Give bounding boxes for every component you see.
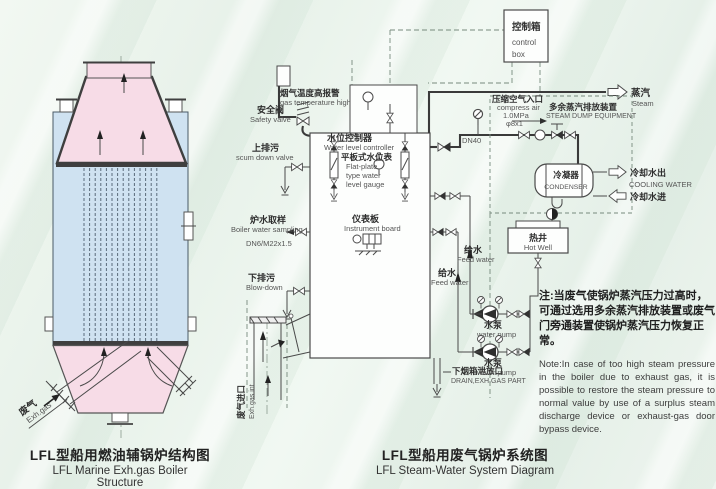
condensate-valve: [552, 209, 558, 220]
dump-control-valve: [552, 131, 563, 138]
pump2-label-zh: 水泵: [484, 357, 503, 368]
steam-dump-label-en: STEAM DUMP EQUIPMENT: [546, 113, 637, 120]
cooling-in-arrow-icon: [609, 190, 626, 203]
gauge-label-en1: Flat-plate: [346, 162, 377, 171]
steam-label-en: Steam: [632, 99, 654, 108]
dump-separator: [535, 130, 545, 140]
right-flange: [188, 317, 196, 331]
gauge-label-en2: type water: [346, 171, 381, 180]
boiler-water-sampling: 炉水取样 Boiler water sampling DN6/M22x1.5: [231, 214, 310, 248]
sampling-label-en: Boiler water sampling: [231, 225, 303, 234]
left-caption-en: LFL Marine Exh.gas Boiler Structure: [28, 465, 212, 489]
blow-down-valve: 下排污 Blow-down: [246, 272, 310, 319]
control-box: 控制箱 control box: [504, 10, 548, 62]
safety-valve-label-zh: 安全阀: [257, 104, 284, 115]
steam-dump-label-zh: 多余蒸汽排放装置: [549, 102, 618, 112]
cooling-out-arrow-icon: [609, 166, 626, 179]
control-box-label-en1: control: [512, 38, 536, 47]
scum-label-en: scum down valve: [236, 153, 294, 162]
hot-well-label-en: Hot Well: [524, 243, 553, 252]
scum-label-zh: 上排污: [252, 142, 279, 153]
safety-valve-label-en: Safety valve: [250, 115, 291, 124]
furnace: [53, 346, 188, 414]
gas-funnel: [57, 77, 186, 163]
compress-air-pipe-size: φ8x1: [506, 119, 523, 128]
instrument-board-label-zh: 仪表板: [351, 213, 380, 224]
blow-down-label-en: Blow-down: [246, 283, 283, 292]
pump1-label-zh: 水泵: [484, 319, 503, 330]
condenser-label-zh: 冷凝器: [553, 170, 579, 180]
hot-well-label-zh: 热井: [529, 232, 547, 243]
dn40-label: DN40: [462, 136, 481, 145]
upper-tube-sheet: [56, 163, 187, 167]
instrument-board-label-en: Instrument board: [344, 224, 401, 233]
note-block: 注:当废气使锅炉蒸汽压力过高时，可通过选用多余蒸汽排放装置或废气门旁通装置使锅炉…: [539, 289, 715, 436]
cooling-water-label: COOLING WATER: [629, 180, 693, 189]
blow-down-label-zh: 下排污: [248, 272, 275, 283]
note-en: Note:In case of too high steam pressure …: [539, 358, 715, 436]
pump2-label-en: water pump: [476, 368, 516, 377]
control-box-label-en2: box: [512, 50, 525, 59]
gas-temp-label-zh: 烟气温度高报警: [280, 88, 340, 98]
bottom-drain: [112, 413, 128, 422]
exhaust-gas-inlet: 废气进口 Exh.gas int: [236, 300, 310, 419]
right-caption-en: LFL Steam-Water System Diagram: [370, 465, 560, 477]
feed-pumps: 水泵 water pump 水泵 water pump: [458, 297, 530, 378]
exh-part-drain: 下烟箱泄放口 DRAIN,EXH.GAS PART: [433, 358, 527, 397]
feed-water2-label-en: Feed water: [431, 278, 469, 287]
right-caption: LFL型船用废气锅炉系统图 LFL Steam-Water System Dia…: [370, 444, 560, 477]
left-boiler-structure: 废气 Exh.gas: [15, 56, 196, 438]
exh-gas-label: 废气 Exh.gas: [15, 381, 67, 428]
feed-water1-label-zh: 给水: [464, 244, 483, 255]
gauge-label-zh: 平板式水位表: [341, 152, 393, 162]
cooling-out-label: 冷却水出: [630, 167, 666, 178]
condenser: 冷凝器 CONDENSER 冷却水出 COOLING WATER 冷却水进: [535, 164, 693, 228]
safety-valve-symbol: 安全阀 Safety valve: [250, 102, 324, 136]
condenser-label-en: CONDENSER: [544, 184, 588, 191]
left-caption: LFL型船用燃油辅锅炉结构图 LFL Marine Exh.gas Boiler…: [28, 444, 212, 489]
note-zh: 注:当废气使锅炉蒸汽压力过高时，可通过选用多余蒸汽排放装置或废气门旁通装置使锅炉…: [539, 289, 715, 349]
gas-temp-alarm: 烟气温度高报警 gas temperature high: [277, 66, 351, 117]
sampling-spec: DN6/M22x1.5: [246, 239, 292, 248]
control-box-label-zh: 控制箱: [512, 21, 541, 33]
right-caption-zh: LFL型船用废气锅炉系统图: [370, 444, 560, 464]
sampling-label-zh: 炉水取样: [250, 214, 286, 225]
steam-dome: [350, 85, 417, 133]
cooling-in-label: 冷却水进: [630, 191, 666, 202]
left-flange: [45, 317, 53, 331]
drain-label-en: DRAIN,EXH.GAS PART: [451, 378, 527, 385]
steam-pressure-gauge: [473, 109, 482, 125]
lower-tube-sheet: [53, 341, 188, 346]
feed-water1-label-en: Feed water: [457, 255, 495, 264]
gas-outlet-duct: [87, 62, 151, 78]
steam-arrow-icon: [608, 85, 627, 99]
left-caption-zh: LFL型船用燃油辅锅炉结构图: [28, 444, 212, 464]
gauge-label-en3: level gauge: [346, 180, 384, 189]
exh-inlet-label-en: Exh.gas int: [249, 384, 256, 419]
steam-label-zh: 蒸汽: [631, 87, 651, 99]
gas-temp-label-en: gas temperature high: [280, 98, 351, 107]
scum-down-valve: 上排污 scum down valve: [236, 142, 310, 195]
feed-water2-label-zh: 给水: [438, 267, 457, 278]
exh-inlet-label-zh: 废气进口: [236, 385, 246, 419]
